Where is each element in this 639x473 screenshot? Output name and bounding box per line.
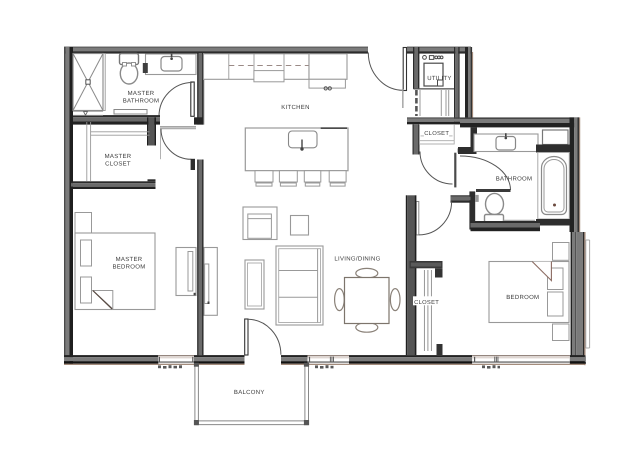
svg-text:MASTER: MASTER (105, 153, 132, 160)
svg-text:MASTER: MASTER (116, 256, 143, 263)
svg-text:BEDROOM: BEDROOM (112, 264, 145, 271)
svg-text:MASTER: MASTER (128, 90, 155, 97)
svg-text:_CLOSET_: _CLOSET_ (420, 130, 454, 137)
svg-text:BATHROOM: BATHROOM (123, 98, 160, 105)
svg-text:UTILITY: UTILITY (427, 75, 451, 82)
svg-text:LIVING/DINING: LIVING/DINING (334, 256, 380, 263)
svg-text:BATHROOM: BATHROOM (496, 176, 533, 183)
svg-text:BALCONY: BALCONY (234, 389, 265, 396)
svg-text:CLOSET: CLOSET (105, 161, 131, 168)
svg-text:BEDROOM: BEDROOM (506, 294, 539, 301)
svg-text:KITCHEN: KITCHEN (281, 104, 309, 111)
svg-text:CLOSET: CLOSET (414, 299, 439, 306)
